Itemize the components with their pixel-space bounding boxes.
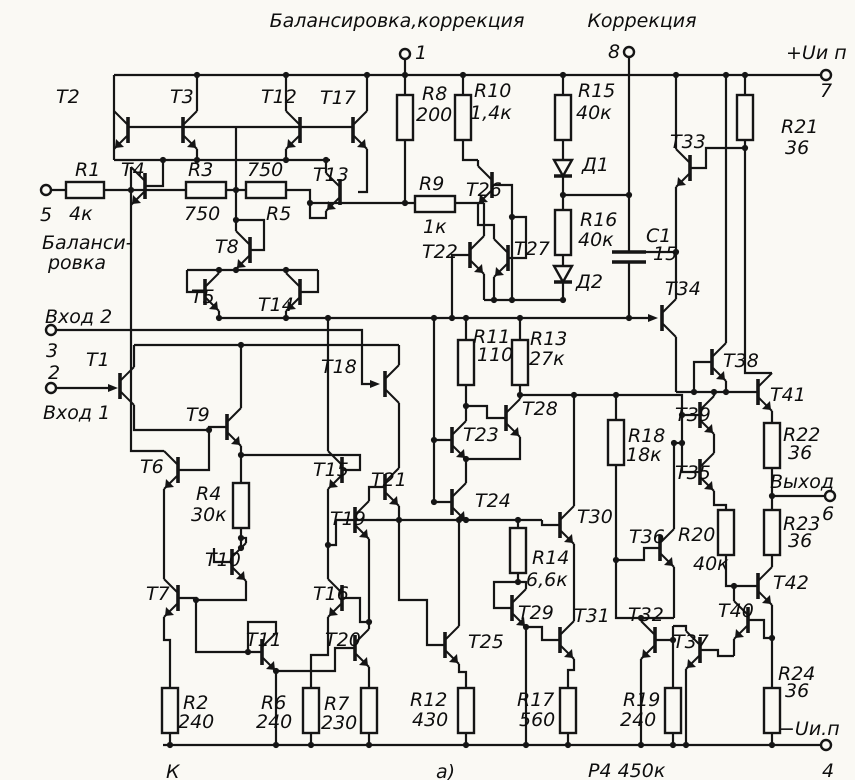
label-R3: R3: [188, 159, 213, 181]
value-R20: 40к: [693, 553, 729, 575]
text-label: 8: [608, 41, 620, 63]
label-R19: R19: [623, 689, 660, 711]
resistor-body: [512, 340, 528, 385]
value-R2: 240: [178, 711, 214, 733]
junction-dot: [509, 214, 515, 220]
terminal-pin-2: [46, 383, 56, 393]
terminal-pin-8: [624, 47, 634, 57]
junction-dot: [723, 389, 729, 395]
value-R15: 40к: [576, 102, 612, 124]
value-R10: 1,4к: [470, 102, 512, 124]
value-R6: 240: [256, 711, 292, 733]
resistor-R1: [66, 182, 104, 198]
label-T18: T18: [321, 356, 357, 378]
terminal-pin-7: [821, 70, 831, 80]
junction-dot: [283, 157, 289, 163]
text-label: а): [436, 761, 455, 780]
label-T1: T1: [86, 349, 110, 371]
junction-dot: [431, 437, 437, 443]
header-label: +Uи п: [786, 42, 847, 64]
label-T2: T2: [56, 86, 80, 108]
value-R9: 1к: [423, 216, 447, 238]
junction-dot: [366, 742, 372, 748]
resistor-body: [458, 340, 474, 385]
label-T33: T33: [670, 131, 706, 153]
label-T28: T28: [522, 398, 558, 420]
junction-dot: [160, 157, 166, 163]
junction-dot: [509, 297, 515, 303]
label-T42: T42: [773, 572, 809, 594]
label-R8: R8: [422, 83, 447, 105]
label-T39: T39: [675, 404, 711, 426]
label-T36: T36: [629, 526, 665, 548]
text-label: Вход 1: [43, 402, 110, 424]
resistor-R7: [361, 688, 377, 733]
junction-dot: [233, 217, 239, 223]
resistor-R12: [458, 688, 474, 733]
junction-dot: [194, 72, 200, 78]
junction-dot: [742, 72, 748, 78]
resistor-body: [510, 528, 526, 573]
junction-dot: [402, 200, 408, 206]
value-R23: 36: [788, 530, 812, 552]
resistor-R21: [737, 95, 753, 140]
text-label: Р4 450к: [588, 760, 666, 780]
junction-dot: [731, 583, 737, 589]
label-T8: T8: [215, 236, 239, 258]
resistor-R17: [560, 688, 576, 733]
junction-dot: [193, 597, 199, 603]
junction-dot: [402, 72, 408, 78]
junction-dot: [670, 742, 676, 748]
junction-dot: [517, 315, 523, 321]
resistor-body: [555, 210, 571, 255]
junction-dot: [128, 187, 134, 193]
junction-dot: [308, 742, 314, 748]
resistor-R8: [397, 95, 413, 140]
resistor-body: [737, 95, 753, 140]
label-T40: T40: [718, 600, 754, 622]
value-R7: 230: [321, 712, 357, 734]
resistor-body: [66, 182, 104, 198]
text-label: ровка: [47, 252, 106, 274]
label-T11: T11: [246, 629, 282, 651]
header-label: Коррекция: [587, 10, 696, 32]
junction-dot: [571, 392, 577, 398]
resistor-body: [246, 182, 286, 198]
text-label: Баланси-: [42, 232, 133, 254]
junction-dot: [613, 392, 619, 398]
junction-dot: [460, 72, 466, 78]
text-label: 7: [820, 80, 832, 102]
junction-dot: [238, 535, 244, 541]
resistor-body: [361, 688, 377, 733]
value-C1: 15: [653, 243, 677, 265]
label-T20: T20: [325, 629, 361, 651]
label-T37: T37: [673, 631, 709, 653]
junction-dot: [364, 72, 370, 78]
resistor-body: [718, 510, 734, 555]
value-R22: 36: [788, 442, 812, 464]
text-label: К: [166, 761, 181, 780]
junction-dot: [283, 72, 289, 78]
label-T23: T23: [463, 424, 499, 446]
junction-dot: [307, 200, 313, 206]
label-T38: T38: [723, 350, 759, 372]
terminal-pin-1: [400, 49, 410, 59]
junction-dot: [560, 192, 566, 198]
resistor-R9: [415, 196, 455, 212]
junction-dot: [626, 192, 632, 198]
junction-dot: [366, 619, 372, 625]
resistor-R20: [718, 510, 734, 555]
resistor-body: [608, 420, 624, 465]
resistor-body: [764, 510, 780, 555]
text-label: 4: [822, 760, 834, 780]
junction-dot: [560, 72, 566, 78]
text-label: 2: [48, 362, 60, 384]
label-T32: T32: [628, 604, 664, 626]
label-T30: T30: [577, 506, 613, 528]
junction-dot: [523, 742, 529, 748]
value-R16: 40к: [578, 229, 614, 251]
text-label: 3: [46, 340, 58, 362]
value-R8: 200: [416, 104, 452, 126]
resistor-body: [162, 688, 178, 733]
junction-dot: [325, 315, 331, 321]
junction-dot: [463, 403, 469, 409]
junction-dot: [769, 742, 775, 748]
label-T41: T41: [770, 384, 806, 406]
junction-dot: [683, 742, 689, 748]
junction-dot: [431, 315, 437, 321]
label-Д1: Д1: [581, 154, 609, 176]
text-label: Выход: [770, 471, 834, 493]
resistor-R2: [162, 688, 178, 733]
resistor-R13: [512, 340, 528, 385]
junction-dot: [216, 267, 222, 273]
junction-dot: [233, 187, 239, 193]
resistor-R16: [555, 210, 571, 255]
junction-dot: [711, 389, 717, 395]
junction-dot: [613, 557, 619, 563]
resistor-R22: [764, 423, 780, 468]
label-R17: R17: [517, 689, 554, 711]
label-T9: T9: [186, 404, 210, 426]
resistor-R11: [458, 340, 474, 385]
resistor-R6: [303, 688, 319, 733]
text-label: 1: [415, 42, 427, 64]
junction-dot: [723, 72, 729, 78]
label-T3: T3: [170, 86, 194, 108]
value-R17: 560: [519, 709, 555, 731]
terminal-pin-5: [41, 185, 51, 195]
junction-dot: [769, 635, 775, 641]
label-R14: R14: [532, 547, 569, 569]
label-T17: T17: [320, 87, 356, 109]
text-label: 5: [40, 204, 52, 226]
junction-dot: [742, 145, 748, 151]
junction-dot: [238, 452, 244, 458]
junction-dot: [463, 742, 469, 748]
schematic-page: T1T2T3T4T5T6T7T8T9T10T11T12T13T14T15T16T…: [0, 0, 855, 780]
resistor-body: [764, 688, 780, 733]
header-label: Балансировка,коррекция: [270, 10, 525, 32]
label-T6: T6: [140, 456, 164, 478]
junction-dot: [449, 315, 455, 321]
resistor-body: [233, 483, 249, 528]
junction-dot: [273, 742, 279, 748]
label-T21: T21: [371, 469, 407, 491]
value-R3: 750: [184, 203, 220, 225]
label-R4: R4: [196, 483, 221, 505]
opamp-schematic: T1T2T3T4T5T6T7T8T9T10T11T12T13T14T15T16T…: [0, 0, 855, 780]
junction-dot: [431, 499, 437, 505]
resistor-body: [458, 688, 474, 733]
value-R14: 6,6к: [526, 569, 568, 591]
label-T31: T31: [574, 605, 610, 627]
resistor-R18: [608, 420, 624, 465]
label-T34: T34: [665, 278, 701, 300]
junction-dot: [638, 742, 644, 748]
label-T26: T26: [466, 179, 502, 201]
label-T27: T27: [514, 238, 550, 260]
resistor-R3: [186, 182, 226, 198]
junction-dot: [679, 440, 685, 446]
junction-dot: [238, 342, 244, 348]
junction-dot: [167, 742, 173, 748]
label-R13: R13: [530, 328, 567, 350]
label-R1: R1: [75, 159, 100, 181]
header-label: −Uи.п: [779, 718, 840, 740]
resistor-R5: [246, 182, 286, 198]
junction-dot: [691, 389, 697, 395]
junction-dot: [325, 542, 331, 548]
value-R24: 36: [785, 680, 809, 702]
resistor-body: [186, 182, 226, 198]
resistor-R10: [455, 95, 471, 140]
label-T29: T29: [518, 602, 554, 624]
resistor-body: [303, 688, 319, 733]
value-R18: 18к: [626, 444, 662, 466]
value-R5: 750: [247, 159, 283, 181]
resistor-R15: [555, 95, 571, 140]
label-R15: R15: [578, 80, 615, 102]
junction-dot: [396, 517, 402, 523]
resistor-body: [665, 688, 681, 733]
label-T13: T13: [313, 164, 349, 186]
resistor-body: [560, 688, 576, 733]
label-T10: T10: [205, 549, 241, 571]
label-T7: T7: [146, 583, 170, 605]
text-label: 6: [822, 503, 834, 525]
junction-dot: [515, 517, 521, 523]
label-R12: R12: [410, 689, 447, 711]
junction-dot: [323, 157, 329, 163]
junction-dot: [565, 742, 571, 748]
value-R11: 110: [477, 344, 513, 366]
resistor-R4: [233, 483, 249, 528]
junction-dot: [626, 315, 632, 321]
label-Д2: Д2: [575, 271, 603, 293]
resistor-R23: [764, 510, 780, 555]
label-T12: T12: [261, 86, 297, 108]
label-T25: T25: [468, 631, 504, 653]
junction-dot: [769, 493, 775, 499]
terminal-pin-4: [821, 740, 831, 750]
resistor-body: [415, 196, 455, 212]
junction-dot: [515, 579, 521, 585]
value-R1: 4к: [69, 203, 93, 225]
label-R16: R16: [580, 209, 617, 231]
value-R4: 30к: [191, 504, 227, 526]
text-label: Вход 2: [45, 306, 112, 328]
resistor-R14: [510, 528, 526, 573]
label-T19: T19: [330, 508, 366, 530]
resistor-R19: [665, 688, 681, 733]
junction-dot: [463, 315, 469, 321]
resistor-body: [455, 95, 471, 140]
label-T16: T16: [313, 583, 349, 605]
junction-dot: [206, 427, 212, 433]
label-R9: R9: [419, 173, 444, 195]
label-T22: T22: [422, 241, 458, 263]
value-R21: 36: [785, 137, 809, 159]
label-R10: R10: [474, 80, 511, 102]
resistor-body: [555, 95, 571, 140]
label-T15: T15: [313, 459, 349, 481]
junction-dot: [560, 297, 566, 303]
label-T4: T4: [121, 159, 145, 181]
label-T14: T14: [258, 294, 294, 316]
junction-dot: [671, 440, 677, 446]
value-R19: 240: [620, 709, 656, 731]
label-R5: R5: [266, 203, 291, 225]
junction-dot: [491, 297, 497, 303]
resistor-R24: [764, 688, 780, 733]
junction-dot: [283, 267, 289, 273]
label-T24: T24: [475, 490, 511, 512]
label-T5: T5: [191, 286, 215, 308]
label-R21: R21: [781, 116, 818, 138]
label-R20: R20: [678, 524, 715, 546]
value-R12: 430: [412, 709, 448, 731]
label-T35: T35: [675, 462, 711, 484]
value-R13: 27к: [529, 348, 565, 370]
junction-dot: [216, 315, 222, 321]
junction-dot: [673, 72, 679, 78]
resistor-body: [764, 423, 780, 468]
resistor-body: [397, 95, 413, 140]
